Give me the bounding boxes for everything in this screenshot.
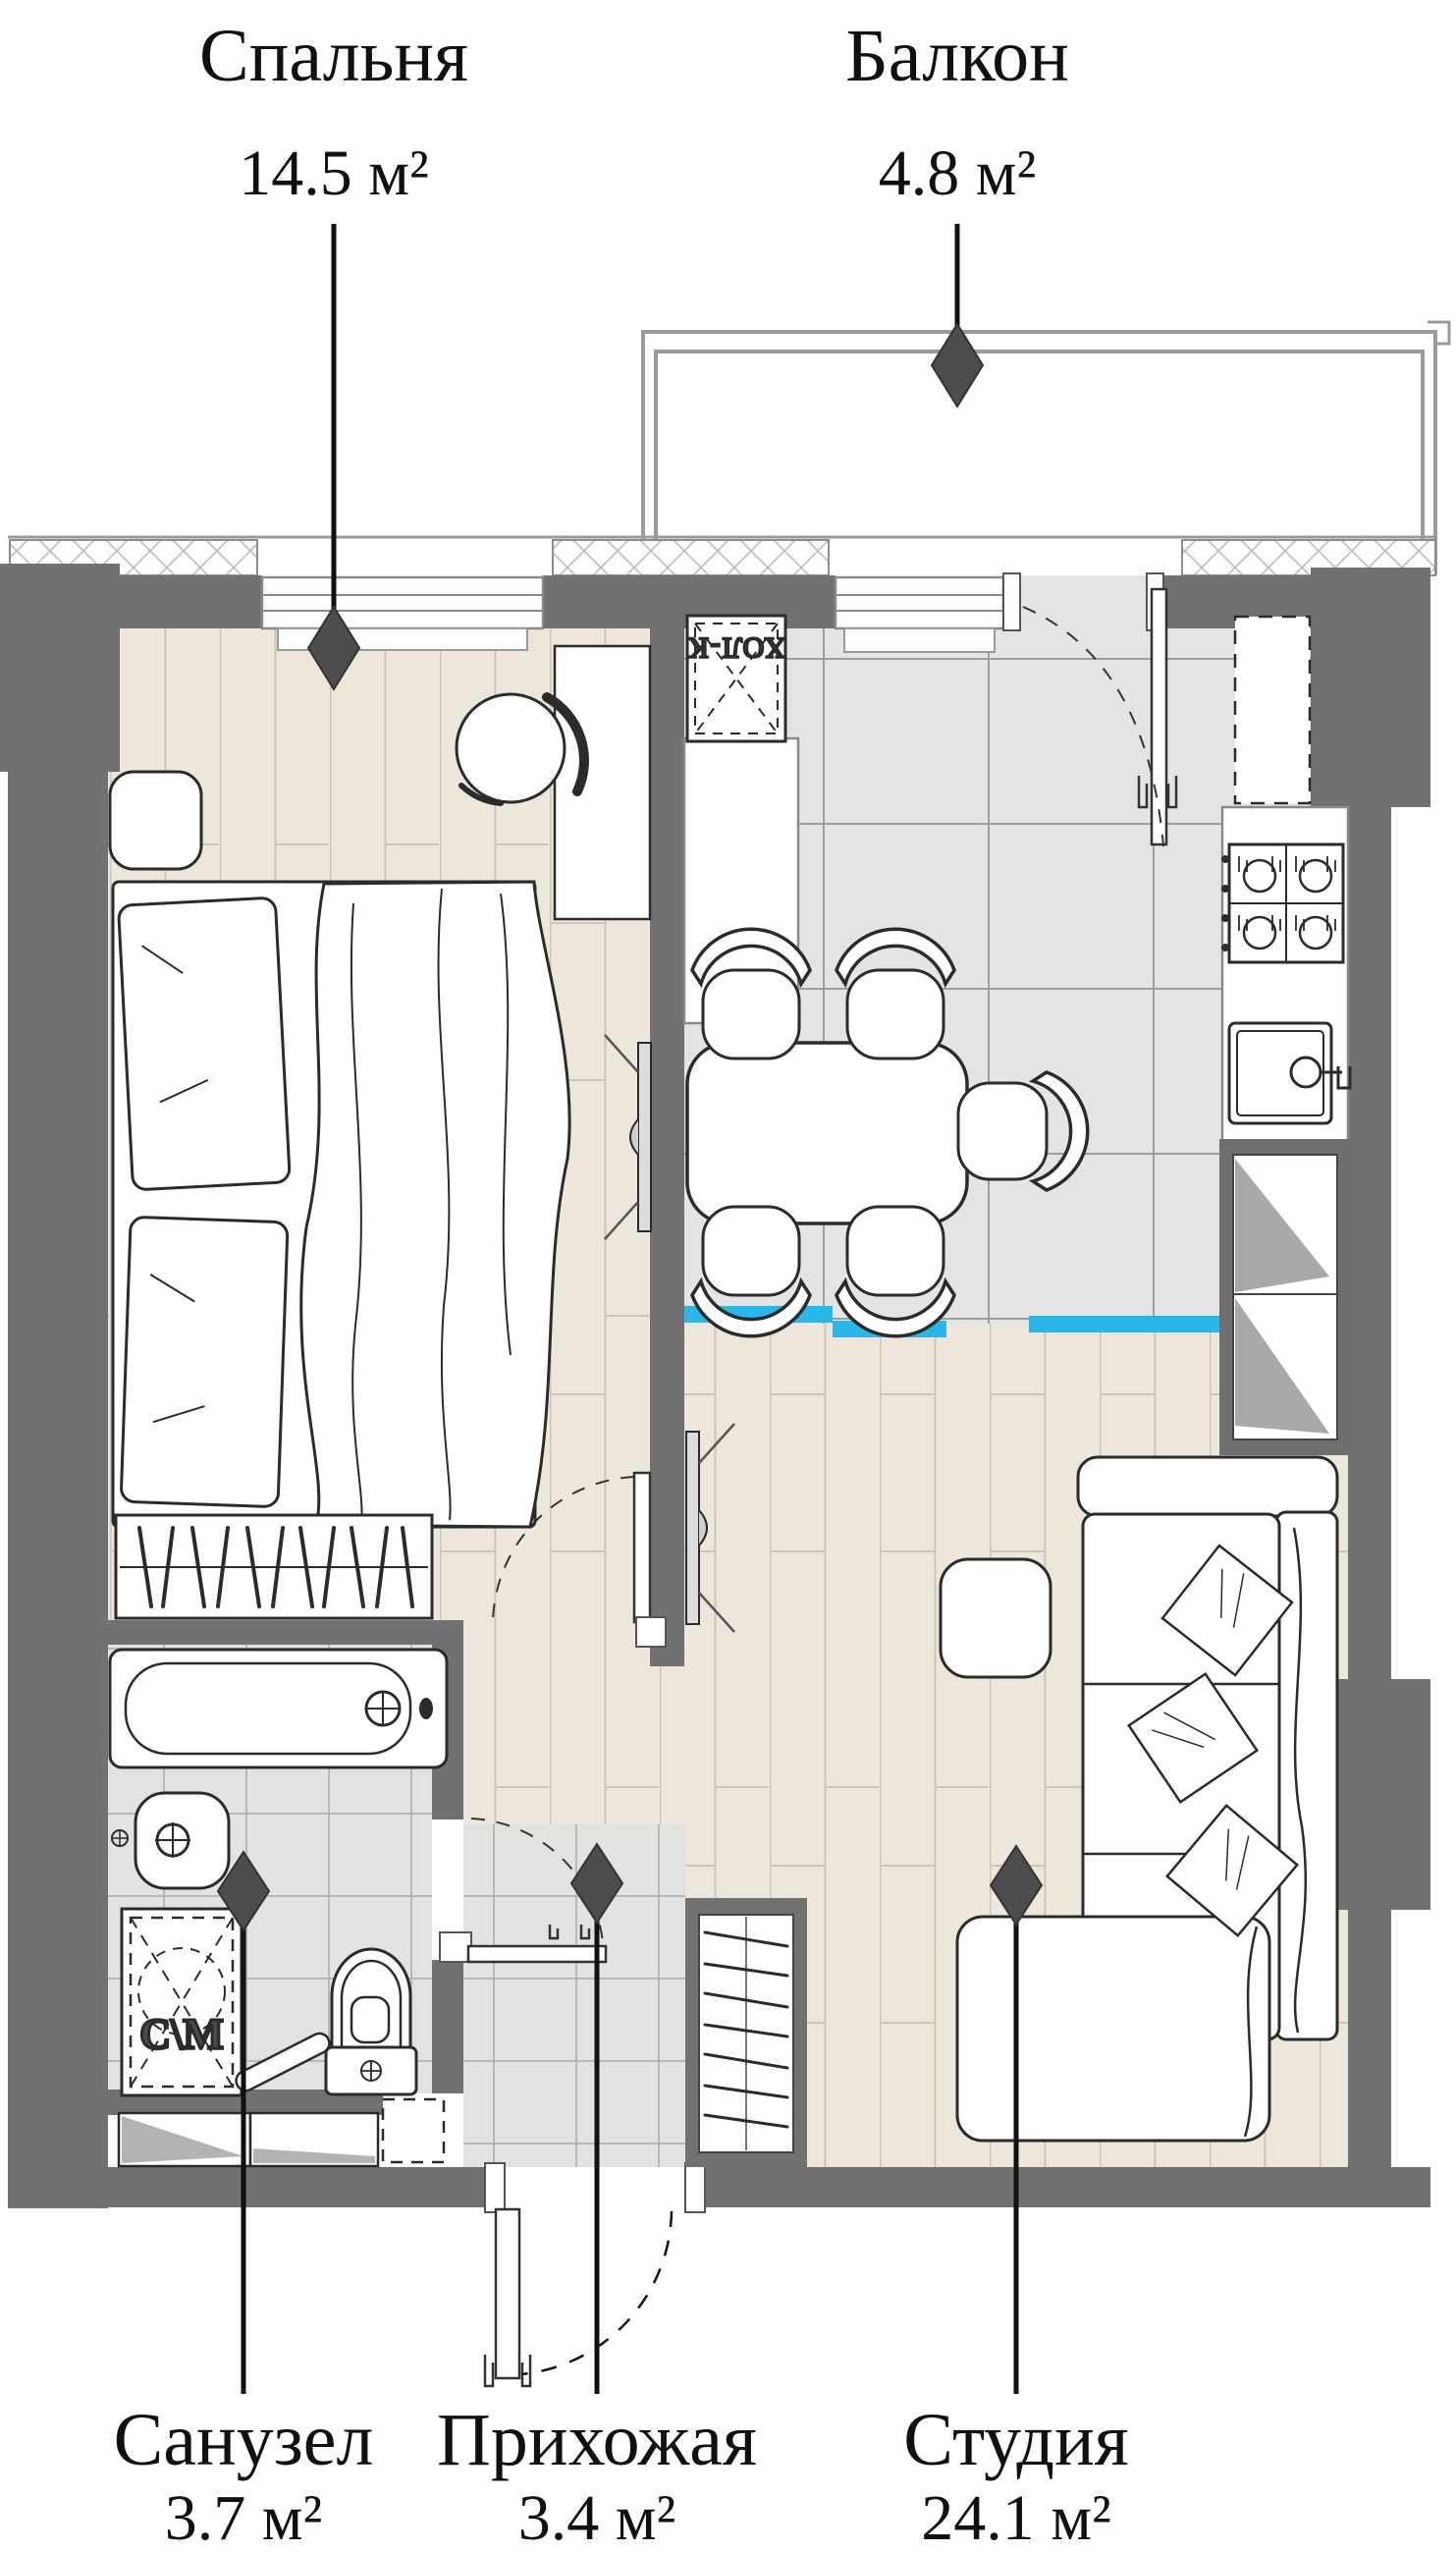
upper-cabinet-dashed	[1235, 617, 1310, 803]
kitchen-sink	[1229, 1023, 1350, 1123]
label-balcony-name: Балкон	[845, 15, 1069, 97]
label-studio-name: Студия	[903, 2399, 1128, 2481]
balcony-door-leaf	[1152, 589, 1166, 844]
wall-top-seg-1	[108, 575, 262, 628]
bedroom-wardrobe-rack	[116, 1515, 432, 1618]
hatch-wall-bands	[10, 540, 1435, 575]
bedroom-door-leaf	[634, 1473, 650, 1622]
bathroom-door-leaf	[468, 1946, 606, 1962]
label-bedroom-area: 14.5 м²	[239, 137, 429, 209]
entry-door-leaf	[496, 2209, 519, 2378]
sofa-chaise	[957, 1917, 1269, 2141]
bed	[113, 882, 569, 1527]
bedroom-window	[262, 577, 543, 650]
wall-partition-bedroom	[650, 628, 684, 1666]
column-top-right	[1311, 568, 1430, 807]
wall-bathroom-north	[100, 1620, 463, 1645]
wall-right-lower	[1348, 1910, 1391, 2207]
fridge-label: ХОЛ-К	[687, 631, 786, 664]
wall-bottom-left	[8, 2167, 504, 2207]
label-bathroom-area: 3.7 м²	[165, 2482, 323, 2547]
wall-bathroom-east-lower	[432, 1960, 463, 2093]
label-bathroom-name: Санузел	[114, 2399, 374, 2481]
dining-table	[687, 1043, 967, 1223]
desk	[555, 646, 650, 919]
label-bedroom-name: Спальня	[199, 15, 468, 97]
wall-left	[8, 564, 108, 2208]
label-hallway-name: Прихожая	[437, 2399, 757, 2481]
stove	[1221, 844, 1343, 962]
wall-bottom-right	[685, 2167, 1430, 2207]
washing-machine: С\М	[122, 1909, 242, 2095]
fridge: ХОЛ-К	[687, 616, 786, 741]
hallway-floor	[463, 1824, 685, 2167]
washer-label: С\М	[139, 2010, 224, 2058]
duct-shaft	[383, 2099, 444, 2162]
wall-right-upper	[1348, 805, 1391, 1681]
marker-balcony	[932, 324, 983, 407]
bathtub	[110, 1650, 447, 1767]
toilet	[326, 1949, 416, 2094]
label-studio-area: 24.1 м²	[921, 2482, 1111, 2547]
kitchen-window	[836, 577, 1003, 652]
label-balcony-area: 4.8 м²	[879, 137, 1037, 209]
blanket	[301, 882, 569, 1527]
floor-plan-page: ХОЛ-К	[0, 0, 1456, 2547]
nightstand	[110, 772, 201, 869]
studio-wardrobe	[1219, 1139, 1351, 1455]
entry-closet	[119, 2113, 378, 2166]
hallway-closet	[685, 1898, 807, 2167]
label-hallway-area: 3.4 м²	[518, 2482, 676, 2547]
coffee-table	[941, 1559, 1051, 1677]
floor-plan: ХОЛ-К	[0, 0, 1456, 2547]
